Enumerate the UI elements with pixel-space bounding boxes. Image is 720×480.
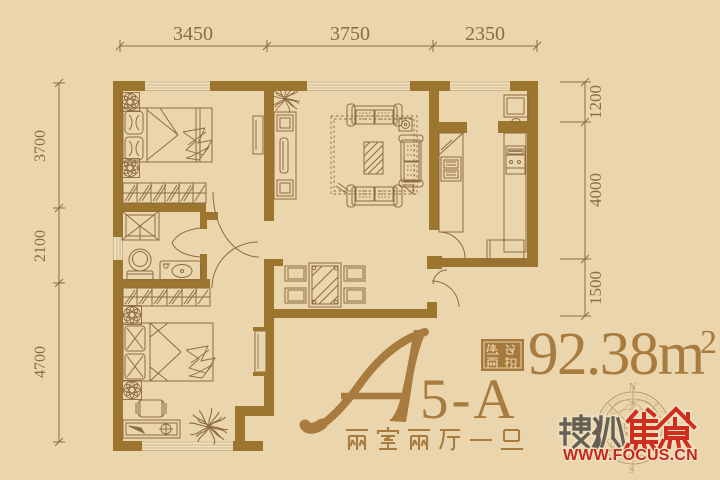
svg-text:92.38m: 92.38m (528, 321, 705, 388)
svg-text:4000: 4000 (586, 173, 605, 207)
svg-text:4700: 4700 (32, 346, 49, 378)
svg-text:1200: 1200 (586, 85, 605, 119)
svg-text:3700: 3700 (32, 130, 49, 162)
svg-text:S: S (629, 465, 634, 475)
svg-text:2350: 2350 (465, 23, 505, 45)
svg-text:N: N (629, 382, 636, 393)
svg-text:2: 2 (700, 324, 717, 361)
svg-text:1500: 1500 (586, 271, 605, 305)
svg-text:WWW.FOCUS.CN: WWW.FOCUS.CN (563, 447, 698, 464)
svg-text:3750: 3750 (330, 23, 370, 45)
svg-text:2100: 2100 (32, 230, 49, 262)
svg-text:3450: 3450 (173, 23, 213, 45)
svg-text:5-A: 5-A (420, 368, 518, 431)
